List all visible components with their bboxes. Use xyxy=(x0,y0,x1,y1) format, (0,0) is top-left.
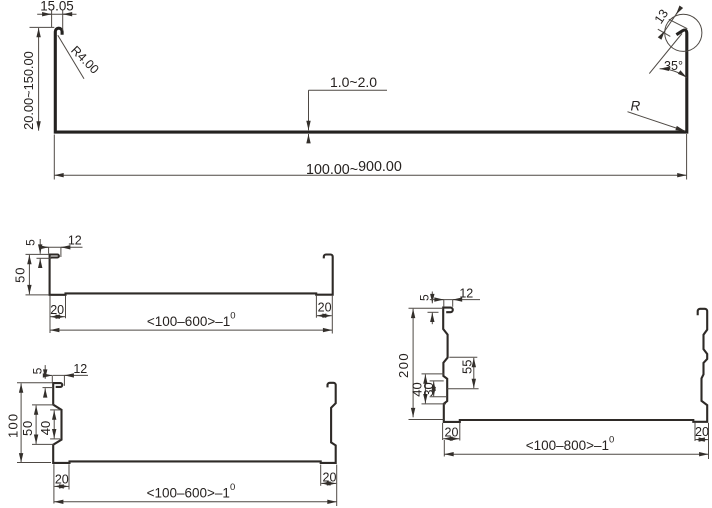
svg-text:20: 20 xyxy=(50,303,64,317)
svg-text:20: 20 xyxy=(318,301,332,315)
svg-text:40: 40 xyxy=(38,421,53,435)
svg-text:30: 30 xyxy=(421,382,436,396)
svg-text:100: 100 xyxy=(6,413,21,438)
svg-text:55: 55 xyxy=(459,360,474,374)
svg-text:15.05: 15.05 xyxy=(40,0,74,14)
svg-text:20: 20 xyxy=(695,425,709,439)
svg-text:50: 50 xyxy=(12,267,27,283)
svg-text:20: 20 xyxy=(323,470,337,484)
svg-text:20.00~150.00: 20.00~150.00 xyxy=(21,51,36,130)
svg-text:12: 12 xyxy=(459,287,473,301)
svg-text:200: 200 xyxy=(396,352,411,378)
svg-text:5: 5 xyxy=(417,294,431,301)
svg-text:<100–800>–10: <100–800>–10 xyxy=(526,435,615,454)
svg-text:5: 5 xyxy=(30,367,44,374)
svg-text:50: 50 xyxy=(20,420,35,436)
svg-text:1.0~2.0: 1.0~2.0 xyxy=(330,74,377,90)
svg-text:12: 12 xyxy=(68,234,82,248)
svg-text:R: R xyxy=(631,99,641,114)
svg-text:100.00~900.00: 100.00~900.00 xyxy=(306,159,402,178)
svg-text:5: 5 xyxy=(24,239,38,246)
svg-text:13: 13 xyxy=(652,7,671,26)
svg-text:20: 20 xyxy=(55,473,69,487)
svg-text:<100–600>–10: <100–600>–10 xyxy=(147,482,236,501)
svg-text:12: 12 xyxy=(73,362,87,376)
svg-text:35°: 35° xyxy=(664,59,683,73)
svg-text:20: 20 xyxy=(445,426,459,440)
svg-text:<100–600>–10: <100–600>–10 xyxy=(147,310,236,329)
